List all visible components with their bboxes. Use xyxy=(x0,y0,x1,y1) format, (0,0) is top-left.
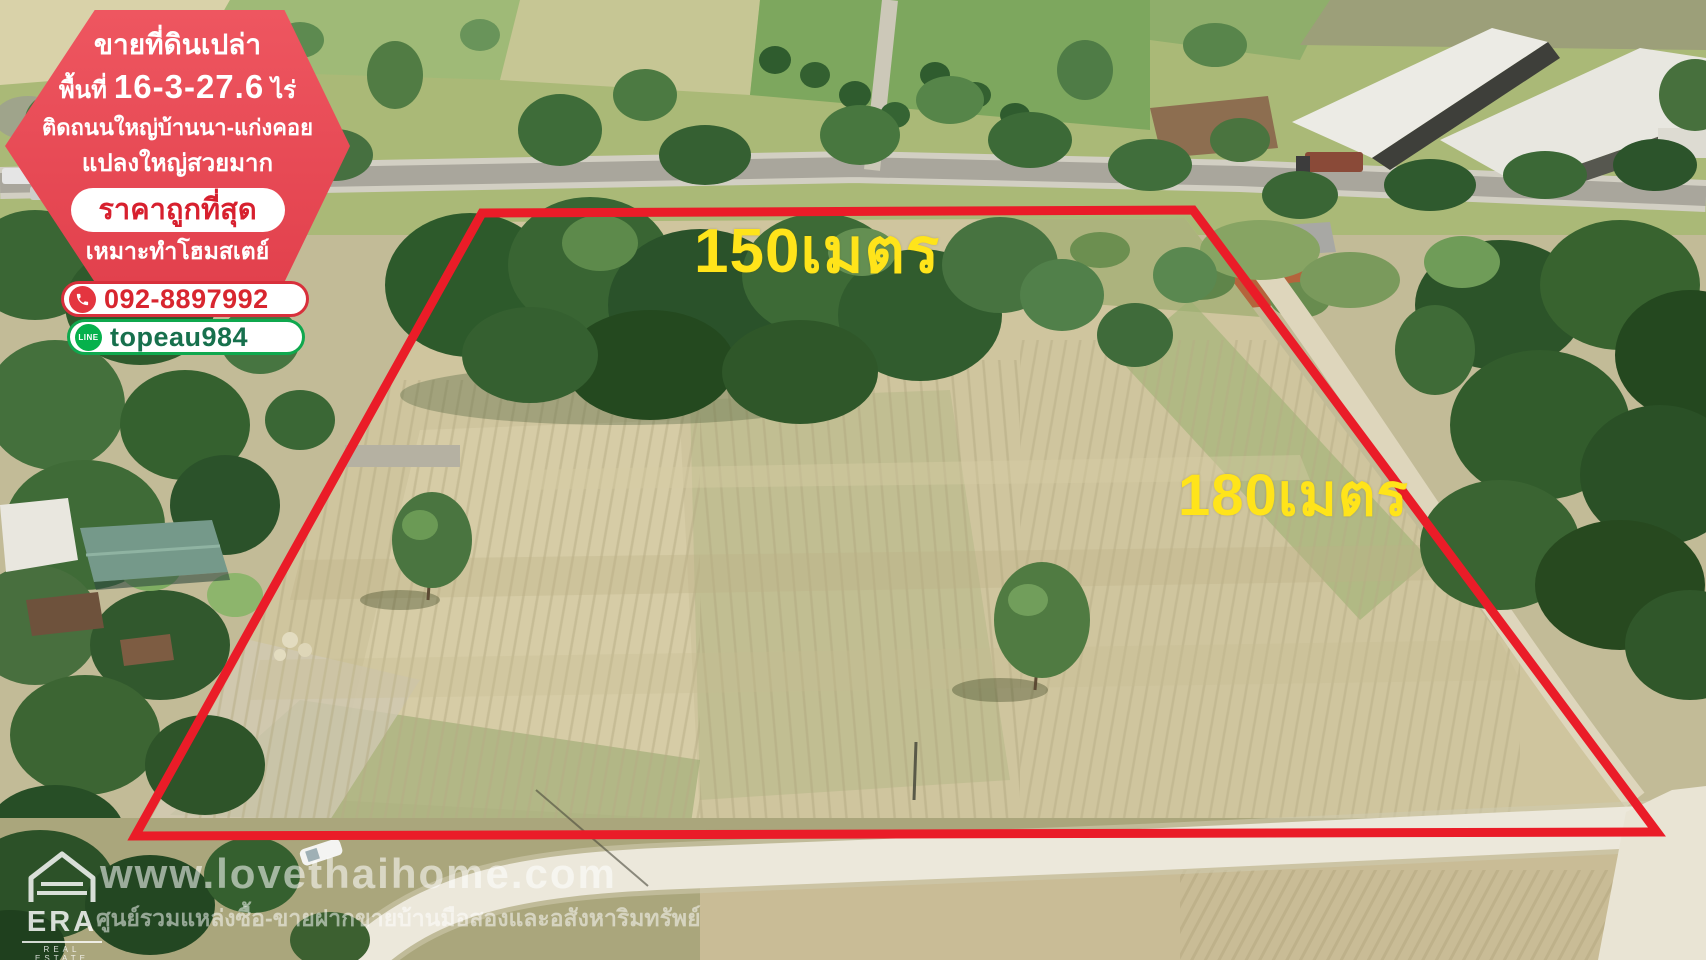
era-subtitle: REAL ESTATE xyxy=(14,945,110,960)
old-foundation xyxy=(345,445,460,467)
badge-area-line: พื้นที่ 16-3-27.6 ไร่ xyxy=(59,66,296,107)
listing-badge: ขายที่ดินเปล่า พื้นที่ 16-3-27.6 ไร่ ติด… xyxy=(5,10,350,362)
era-divider xyxy=(22,941,102,943)
price-pill: ราคาถูกที่สุด xyxy=(71,188,285,232)
line-icon: LINE xyxy=(75,324,102,351)
badge-use-line: เหมาะทำโฮมสเตย์ xyxy=(86,237,269,266)
utility-pole xyxy=(914,742,916,800)
land-listing-photo: 150เมตร 180เมตร ขายที่ดินเปล่า พื้นที่ 1… xyxy=(0,0,1706,960)
line-contact-pill: LINE topeau984 xyxy=(67,319,305,355)
line-id: topeau984 xyxy=(110,322,248,353)
price-pill-label: ราคาถูกที่สุด xyxy=(98,192,256,228)
era-logo: ERA REAL ESTATE xyxy=(14,848,110,960)
area-value: 16-3-27.6 xyxy=(114,66,264,107)
badge-title: ขายที่ดินเปล่า xyxy=(94,27,261,62)
badge-location-line: ติดถนนใหญ่บ้านนา-แก่งคอย xyxy=(42,114,313,142)
era-brand: ERA xyxy=(14,908,110,937)
area-unit: ไร่ xyxy=(271,76,296,106)
phone-contact-pill: 092-8897992 xyxy=(61,281,309,317)
phone-icon xyxy=(69,286,96,313)
era-house-icon xyxy=(25,848,99,906)
dimension-label-right: 180เมตร xyxy=(1178,448,1409,541)
phone-number: 092-8897992 xyxy=(104,284,269,315)
dimension-label-top: 150เมตร xyxy=(694,202,940,300)
badge-plot-line: แปลงใหญ่สวยมาก xyxy=(82,149,273,179)
area-prefix: พื้นที่ xyxy=(59,76,107,106)
